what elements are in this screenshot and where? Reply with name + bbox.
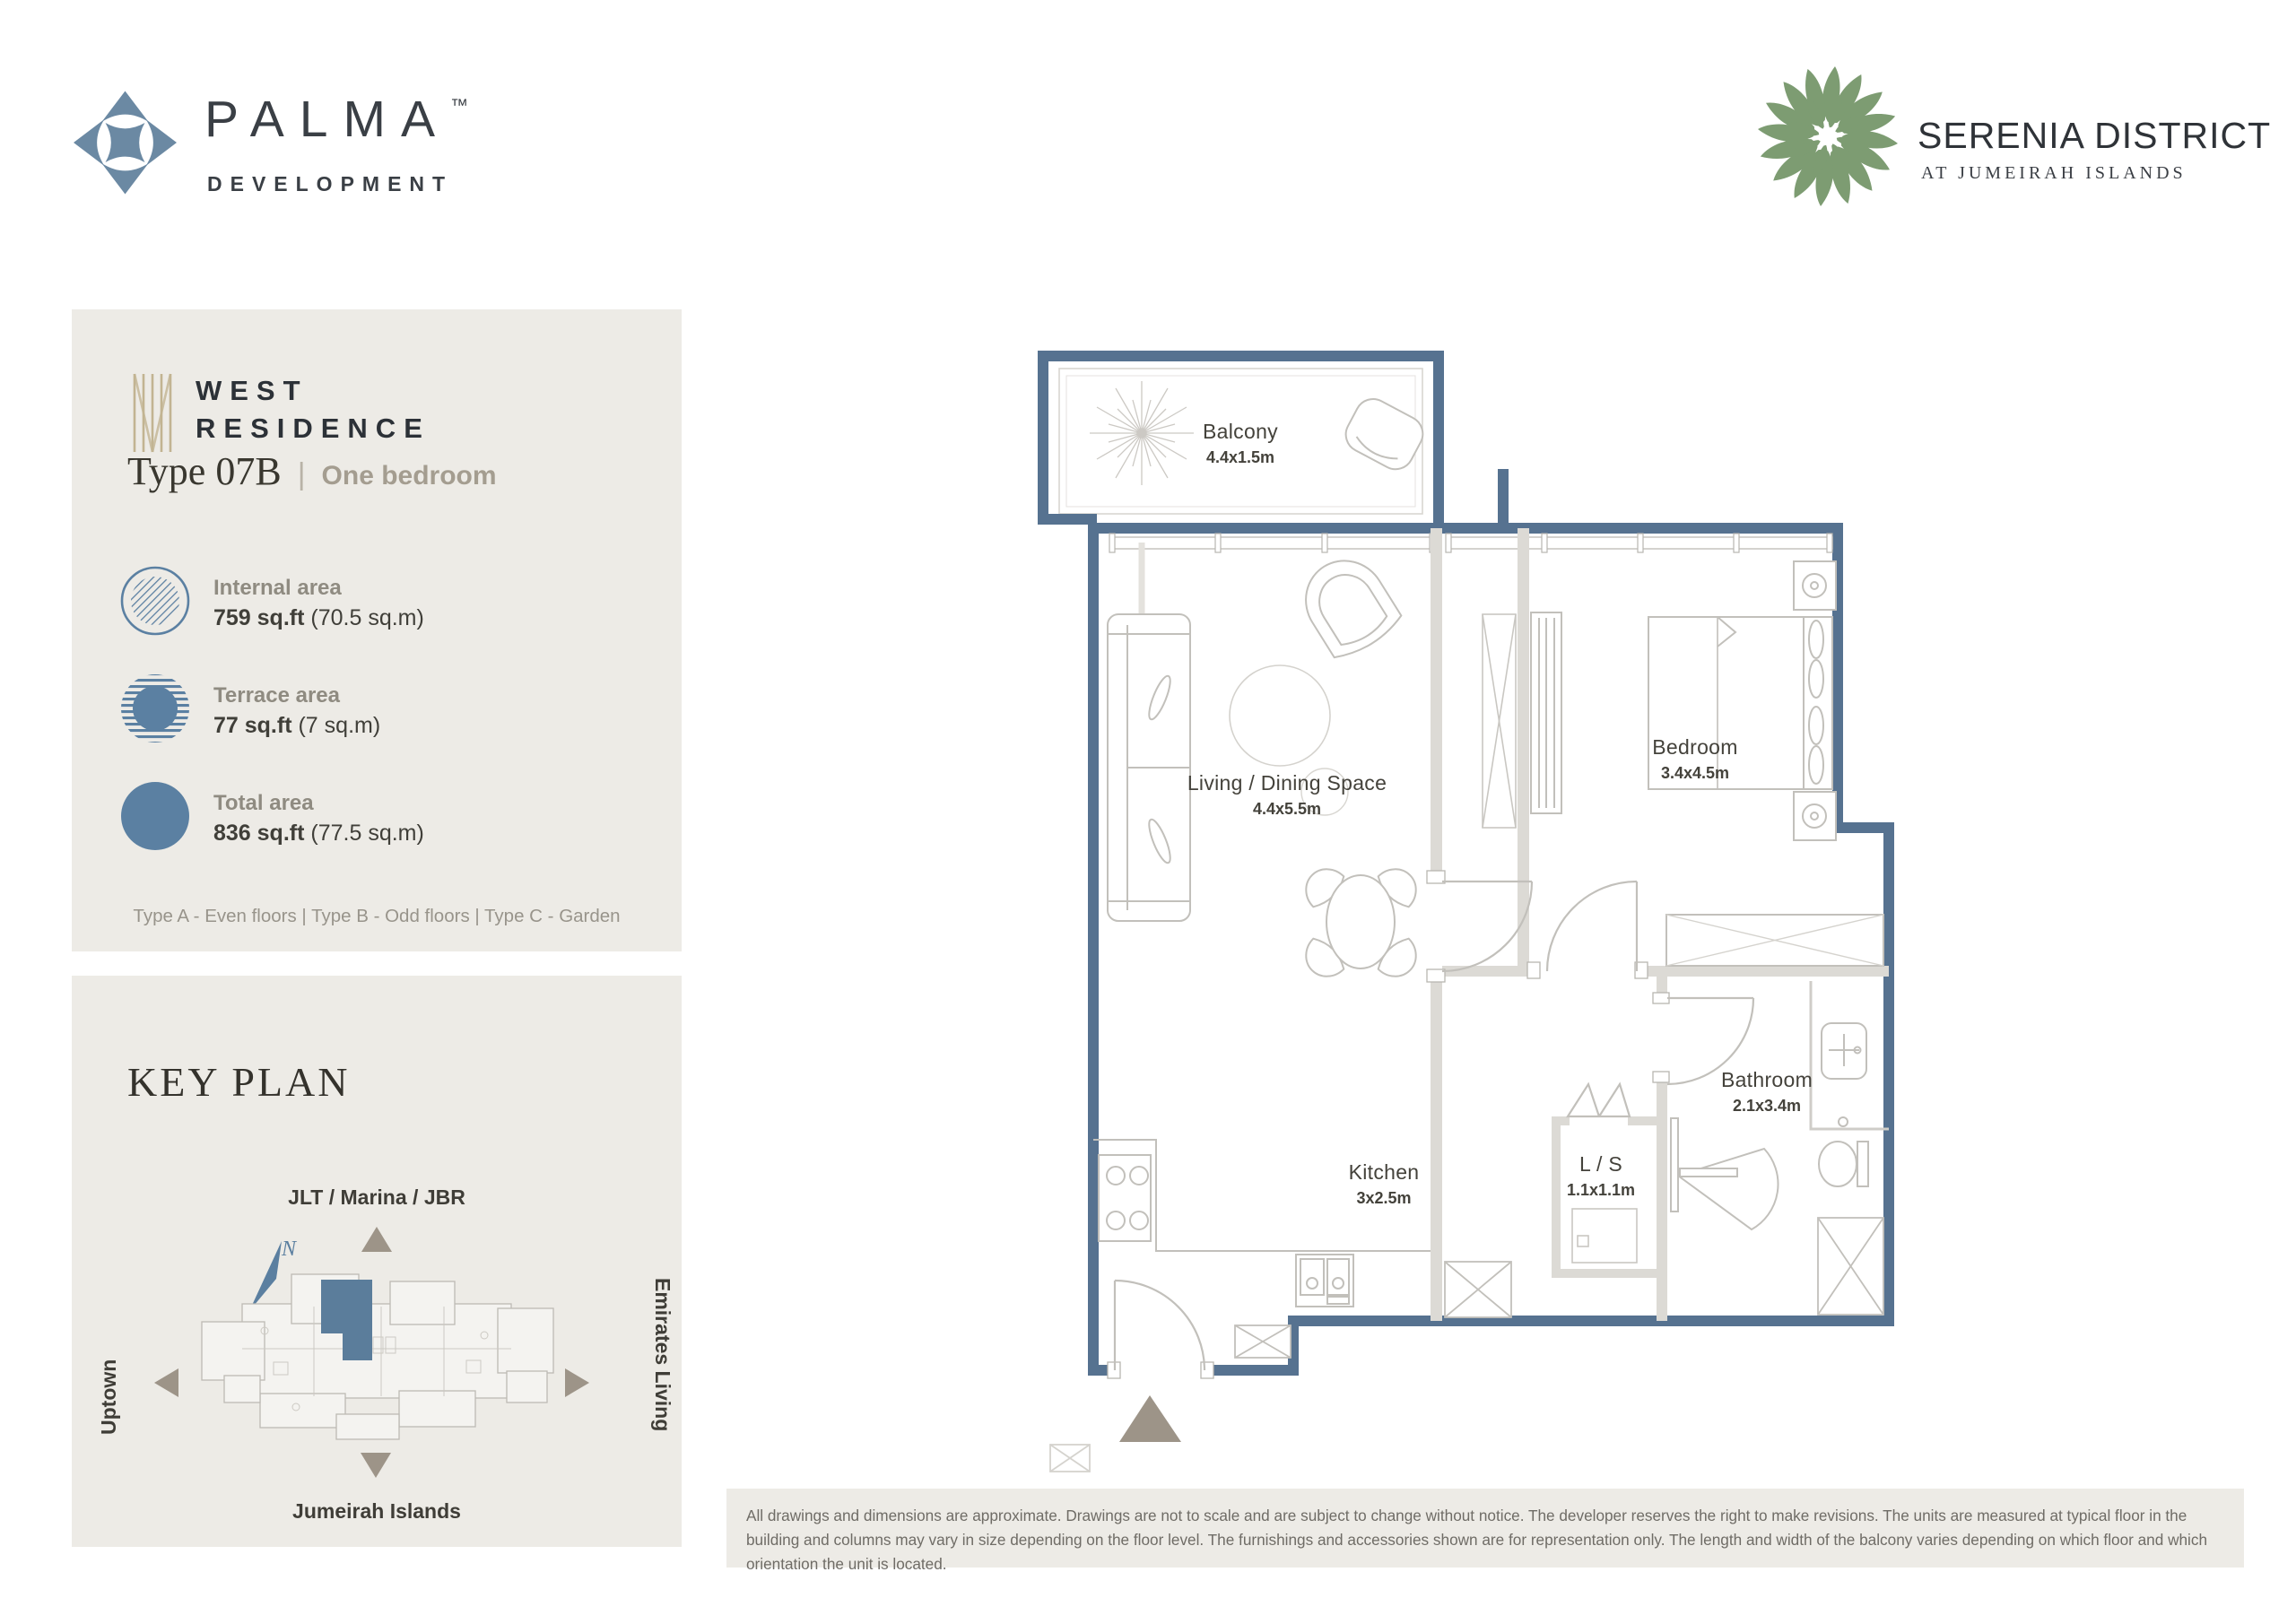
area-label: Internal area <box>213 576 424 601</box>
total-area-row: Total area 836 sq.ft (77.5 sq.m) <box>213 791 424 847</box>
terrace-area-row: Terrace area 77 sq.ft (7 sq.m) <box>213 683 380 739</box>
unit-type-row: Type 07B | One bedroom <box>127 448 497 494</box>
kitchen-sink <box>1296 1255 1353 1307</box>
terrace-area-icon <box>119 673 191 744</box>
dining-set <box>1297 860 1425 986</box>
internal-area-icon <box>119 565 191 637</box>
entry-triangle-icon <box>1119 1395 1181 1442</box>
area-label: Terrace area <box>213 683 380 708</box>
room-label-bathroom: Bathroom 2.1x3.4m <box>1721 1068 1813 1116</box>
trademark: ™ <box>450 96 468 116</box>
triangle-up-icon <box>361 1227 392 1252</box>
direction-label-left: Uptown <box>97 1359 121 1435</box>
residence-name-line2: RESIDENCE <box>196 413 430 445</box>
project-subtitle: AT JUMEIRAH ISLANDS <box>1921 163 2187 184</box>
party-wall-stub <box>1498 469 1509 528</box>
key-plan-map <box>188 1254 565 1444</box>
brand-name: PALMA™ <box>204 90 468 149</box>
shaft-niche <box>1483 614 1516 828</box>
room-label-bedroom: Bedroom 3.4x4.5m <box>1652 735 1737 783</box>
serenia-flower-icon <box>1747 54 1909 224</box>
palma-logo <box>74 90 177 200</box>
direction-label-top: JLT / Marina / JBR <box>288 1185 465 1210</box>
triangle-right-icon <box>565 1368 589 1397</box>
area-value: 836 sq.ft (77.5 sq.m) <box>213 821 424 847</box>
room-label-store: L / S 1.1x1.1m <box>1567 1152 1635 1200</box>
bedroom-count: One bedroom <box>322 461 497 491</box>
triangle-left-icon <box>154 1368 178 1397</box>
bedroom-closet <box>1666 915 1883 966</box>
brochure-page: PALMA™ DEVELOPMENT <box>0 0 2296 1624</box>
project-name: SERENIA DISTRICT <box>1918 115 2271 157</box>
stove <box>1099 1155 1151 1241</box>
key-plan-title: KEY PLAN <box>127 1058 350 1106</box>
room-label-balcony: Balcony 4.4x1.5m <box>1203 420 1278 467</box>
folding-door <box>1568 1084 1630 1116</box>
brand-subtitle: DEVELOPMENT <box>207 172 453 196</box>
room-label-kitchen: Kitchen 3x2.5m <box>1349 1160 1420 1208</box>
key-plan-panel: KEY PLAN JLT / Marina / JBR N <box>72 976 682 1547</box>
room-label-living: Living / Dining Space 4.4x5.5m <box>1187 771 1387 819</box>
shower <box>1678 1149 1779 1229</box>
dining-table <box>1326 875 1395 968</box>
direction-label-right: Emirates Living <box>650 1278 674 1431</box>
total-area-icon <box>119 780 191 852</box>
disclaimer-bar: All drawings and dimensions are approxim… <box>726 1489 2244 1568</box>
area-label: Total area <box>213 791 424 816</box>
unit-info-panel: WEST RESIDENCE Type 07B | One bedroom In… <box>72 309 682 951</box>
triangle-down-icon <box>361 1453 391 1478</box>
store-interior <box>1572 1209 1637 1263</box>
balcony-plant-icon <box>1090 381 1194 485</box>
floor-type-note: Type A - Even floors | Type B - Odd floo… <box>72 906 682 927</box>
internal-area-row: Internal area 759 sq.ft (70.5 sq.m) <box>213 576 424 631</box>
rug <box>1230 665 1330 766</box>
area-value: 759 sq.ft (70.5 sq.m) <box>213 605 424 631</box>
towel-bar <box>1671 1118 1678 1211</box>
unit-type: Type 07B <box>127 448 282 494</box>
windows <box>1109 534 1832 552</box>
disclaimer-text: All drawings and dimensions are approxim… <box>726 1489 2244 1592</box>
area-value: 77 sq.ft (7 sq.m) <box>213 713 380 739</box>
living-room-furniture <box>1108 545 1516 986</box>
type-separator: | <box>298 457 306 492</box>
floor-plan-drawing <box>1036 343 1910 1482</box>
direction-label-bottom: Jumeirah Islands <box>292 1499 461 1524</box>
west-residence-mark-icon <box>127 370 174 456</box>
palma-diamond-icon <box>74 90 177 195</box>
residence-name-line1: WEST <box>196 375 309 407</box>
armchair <box>1291 545 1405 664</box>
